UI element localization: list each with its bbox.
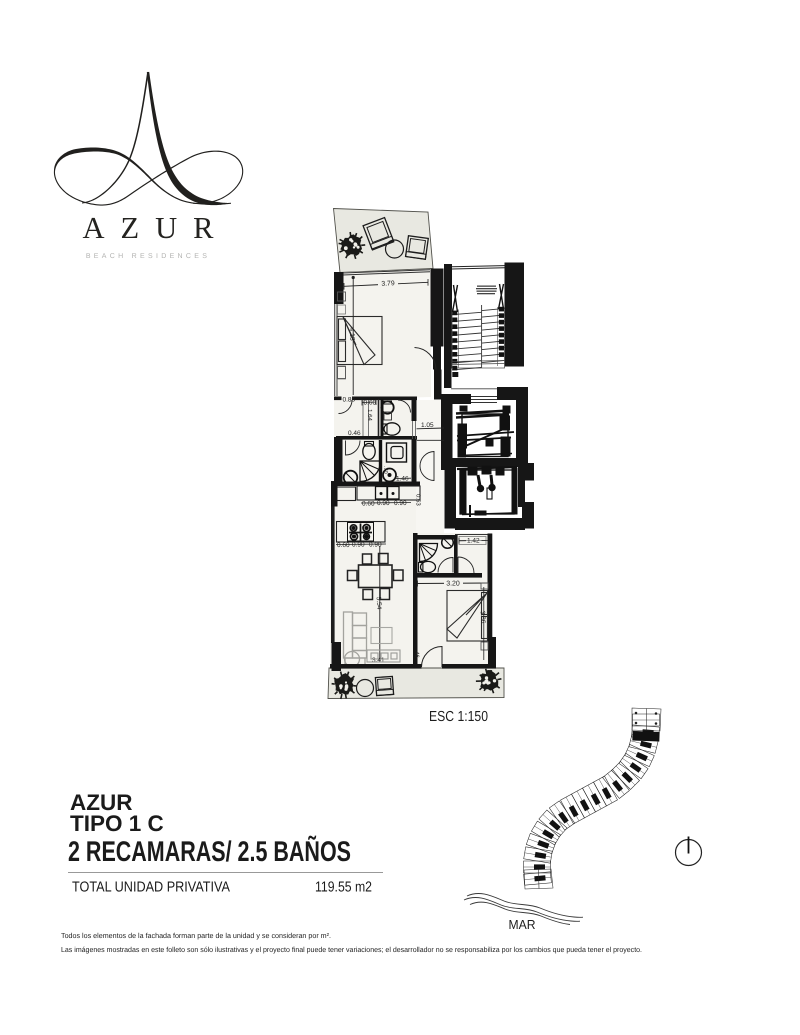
svg-text:0.90: 0.90 <box>394 500 407 507</box>
svg-text:0.85: 0.85 <box>343 397 356 404</box>
svg-text:Todos los elementos de la fach: Todos los elementos de la fachada forman… <box>61 931 331 940</box>
svg-text:1.64: 1.64 <box>366 409 373 421</box>
svg-text:1.42: 1.42 <box>467 538 480 545</box>
svg-text:1.46: 1.46 <box>396 476 409 483</box>
svg-text:0.63: 0.63 <box>415 494 422 506</box>
svg-text:0.90: 0.90 <box>377 500 390 507</box>
svg-text:3.20: 3.20 <box>446 581 460 588</box>
svg-text:MAR: MAR <box>509 917 536 932</box>
svg-text:.46: .46 <box>414 650 420 658</box>
svg-text:0.60: 0.60 <box>337 542 350 549</box>
svg-text:5.54: 5.54 <box>375 597 383 610</box>
svg-text:ESC 1:150: ESC 1:150 <box>429 709 488 725</box>
svg-text:4.13: 4.13 <box>348 327 356 341</box>
svg-text:0.60: 0.60 <box>362 501 375 508</box>
svg-text:AZUR: AZUR <box>82 211 229 245</box>
svg-text:0.46: 0.46 <box>348 430 361 437</box>
svg-text:3.79: 3.79 <box>381 280 395 288</box>
svg-text:TIPO 1 C: TIPO 1 C <box>70 811 164 836</box>
svg-text:TOTAL UNIDAD PRIVATIVA: TOTAL UNIDAD PRIVATIVA <box>72 880 230 896</box>
svg-text:1.05: 1.05 <box>421 422 434 429</box>
svg-text:BEACH RESIDENCES: BEACH RESIDENCES <box>86 253 210 260</box>
svg-text:3.86: 3.86 <box>479 611 487 624</box>
svg-text:119.55 m2: 119.55 m2 <box>315 880 372 896</box>
svg-text:.70: .70 <box>382 466 388 474</box>
svg-text:0.90: 0.90 <box>352 542 365 549</box>
svg-text:2 RECAMARAS/ 2.5 BAÑOS: 2 RECAMARAS/ 2.5 BAÑOS <box>68 835 351 868</box>
svg-text:0.60: 0.60 <box>364 400 377 407</box>
svg-text:Las imágenes mostradas en este: Las imágenes mostradas en este folleto s… <box>61 945 642 954</box>
